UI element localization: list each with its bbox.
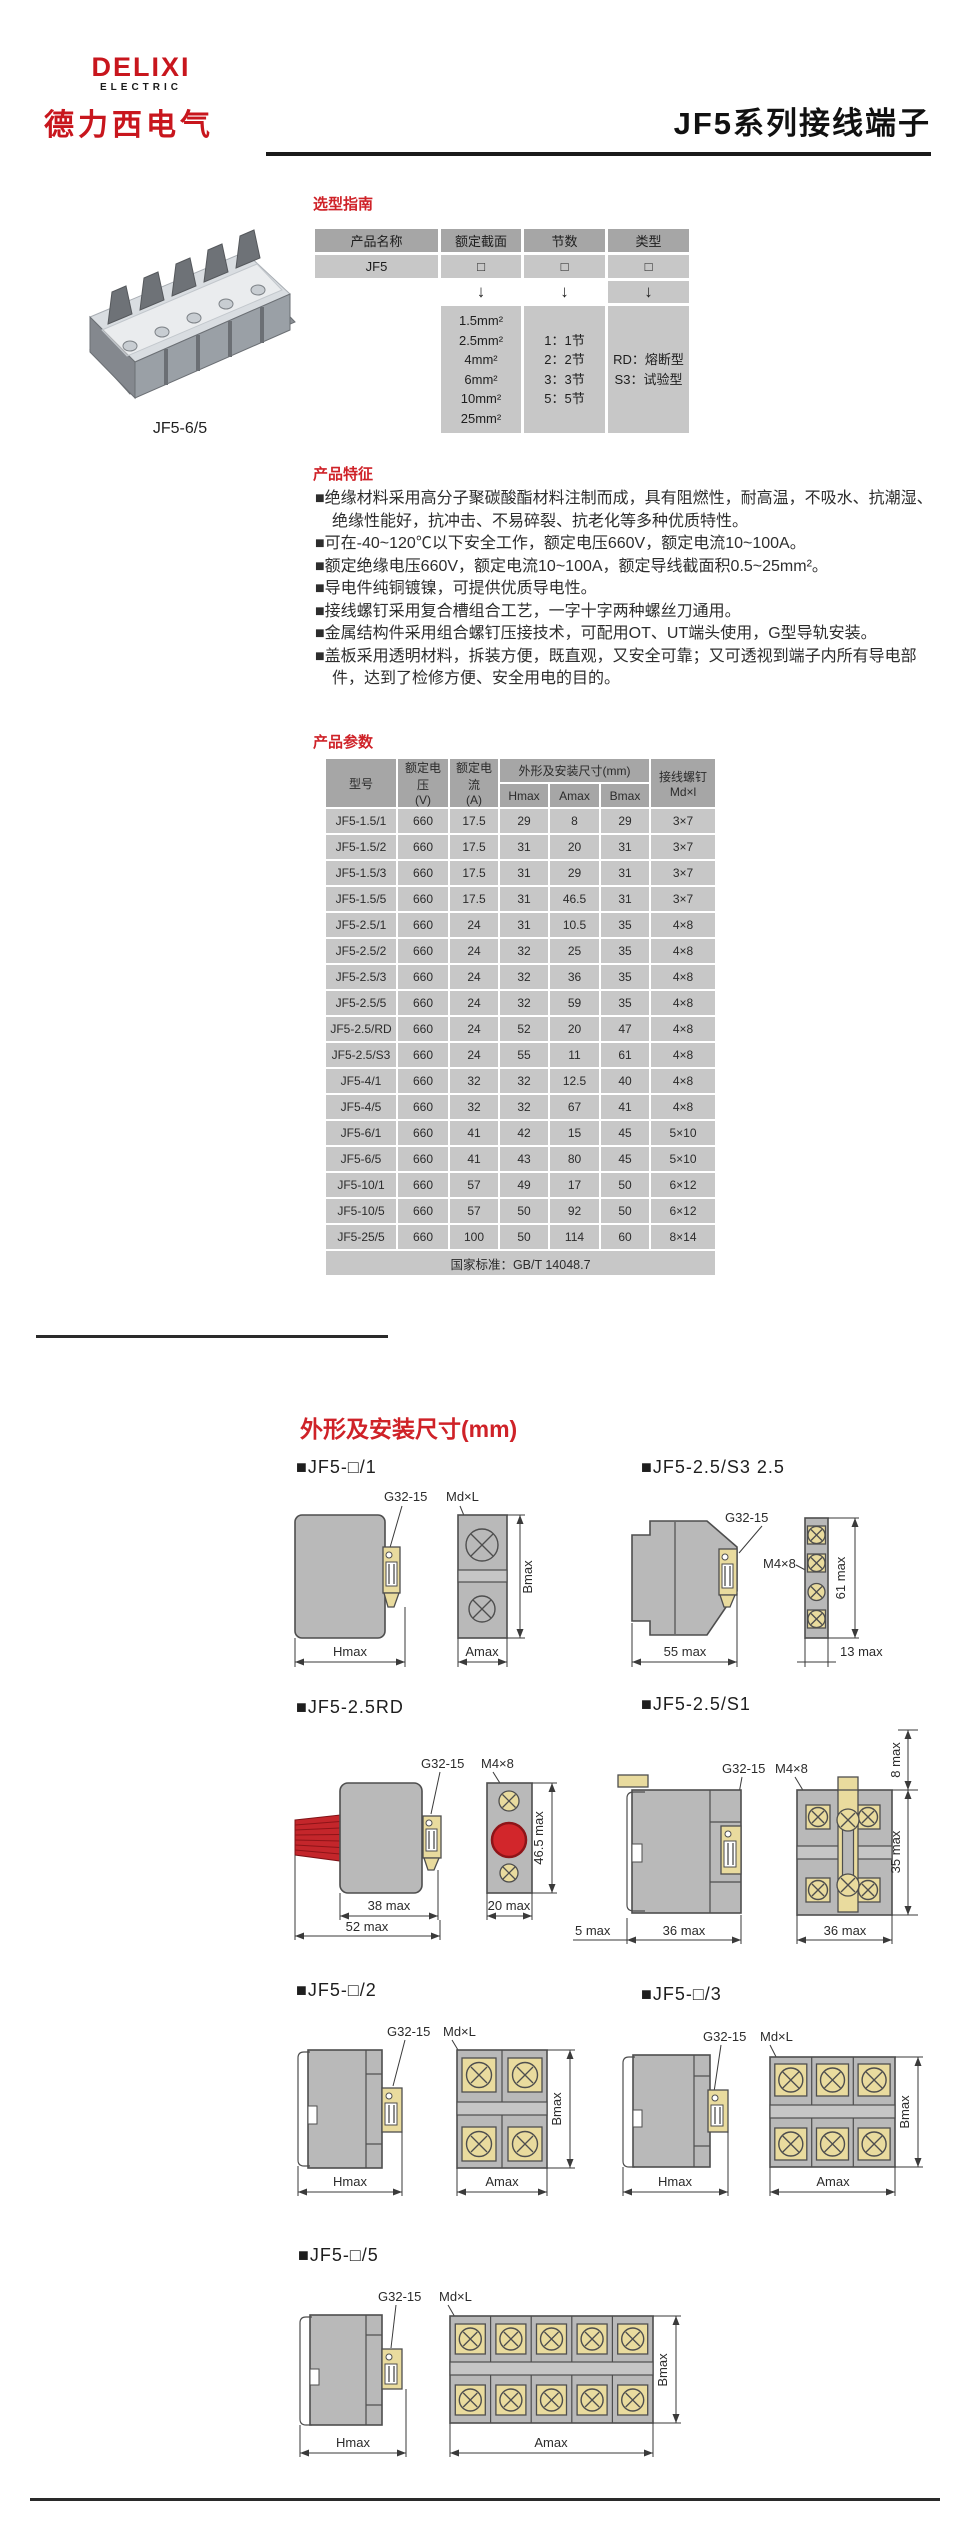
cell-screw: 6×12 bbox=[651, 1199, 715, 1223]
cell-model: JF5-4/5 bbox=[326, 1095, 396, 1119]
front-view bbox=[805, 1518, 828, 1638]
cell-model: JF5-10/5 bbox=[326, 1199, 396, 1223]
cell-model: JF5-2.5/S3 bbox=[326, 1043, 396, 1067]
front-view bbox=[797, 1777, 892, 1915]
dim-bmax: Bmax bbox=[549, 2092, 564, 2126]
dim-overhang: 5 max bbox=[575, 1923, 611, 1938]
dimension-drawing-jf5-5: G32-15 Md×L Bmax Hmax Amax bbox=[280, 2285, 695, 2463]
column-header: 型号 bbox=[326, 759, 396, 807]
cell-hmax: 52 bbox=[500, 1017, 548, 1041]
cell-model: JF5-10/1 bbox=[326, 1173, 396, 1197]
screw-annotation: M4×8 bbox=[775, 1761, 808, 1776]
rail-clip bbox=[423, 1816, 441, 1870]
feature-item: ■盖板采用透明材料，拆装方便，既直观，又安全可靠；又可透视到端子内所有导电部件，… bbox=[315, 646, 937, 691]
placeholder-box: □ bbox=[608, 255, 689, 278]
cell-bmax: 35 bbox=[601, 991, 649, 1015]
dim-hmax: Hmax bbox=[333, 1644, 367, 1659]
cell-hmax: 31 bbox=[500, 887, 548, 911]
cell-amax: 10.5 bbox=[550, 913, 599, 937]
arrow-down-icon: ↓ bbox=[524, 281, 605, 303]
column-header: 节数 bbox=[524, 229, 605, 252]
datasheet-page: DELIXI ELECTRIC 德力西电气 JF5系列接线端子 JF5-6/5 bbox=[0, 0, 970, 2535]
clip-annotation: G32-15 bbox=[725, 1510, 768, 1525]
cell-bmax: 31 bbox=[601, 887, 649, 911]
rail-clip bbox=[383, 1547, 400, 1607]
drawing-label: ■JF5-□/1 bbox=[296, 1457, 377, 1478]
cell-amax: 20 bbox=[550, 1017, 599, 1041]
cell-voltage: 660 bbox=[398, 1095, 448, 1119]
placeholder-box: □ bbox=[524, 255, 605, 278]
title-divider bbox=[266, 152, 931, 156]
table-row: JF5-1.5/5 660 17.5 31 46.5 31 3×7 bbox=[326, 887, 715, 911]
dim-amax: Amax bbox=[485, 2174, 519, 2189]
cell-amax: 11 bbox=[550, 1043, 599, 1067]
cell-bmax: 41 bbox=[601, 1095, 649, 1119]
parameters-table: 型号 额定电压 (V) 额定电流 (A) 外形及安装尺寸(mm) 接线螺钉 Md… bbox=[324, 757, 717, 1277]
clip-annotation: G32-15 bbox=[384, 1489, 427, 1504]
cell-voltage: 660 bbox=[398, 939, 448, 963]
front-view bbox=[458, 1515, 507, 1638]
dim-bmax: Bmax bbox=[520, 1560, 535, 1594]
side-view bbox=[295, 1515, 385, 1638]
dim-total-width: 52 max bbox=[346, 1919, 389, 1934]
cell-screw: 4×8 bbox=[651, 913, 715, 937]
cell-screw: 4×8 bbox=[651, 1069, 715, 1093]
cell-current: 24 bbox=[450, 1017, 498, 1041]
cell-screw: 5×10 bbox=[651, 1121, 715, 1145]
cell-bmax: 45 bbox=[601, 1147, 649, 1171]
cell-bmax: 31 bbox=[601, 861, 649, 885]
cell-hmax: 32 bbox=[500, 939, 548, 963]
arrow-down-icon: ↓ bbox=[441, 281, 521, 303]
screw-annotation: M4×8 bbox=[481, 1756, 514, 1771]
table-row: JF5-10/1 660 57 49 17 50 6×12 bbox=[326, 1173, 715, 1197]
cell-current: 57 bbox=[450, 1199, 498, 1223]
dim-height: 46.5 max bbox=[531, 1811, 546, 1865]
cell-screw: 3×7 bbox=[651, 861, 715, 885]
side-view bbox=[340, 1783, 422, 1893]
dim-hmax: Hmax bbox=[336, 2435, 370, 2450]
cell-current: 41 bbox=[450, 1147, 498, 1171]
cell-model: JF5-6/5 bbox=[326, 1147, 396, 1171]
cell-voltage: 660 bbox=[398, 1069, 448, 1093]
feature-item: ■额定绝缘电压660V，额定电流10~100A，额定导线截面积0.5~25mm²… bbox=[315, 556, 937, 579]
dim-amax: Amax bbox=[465, 1644, 499, 1659]
type-options: RD：熔断型S3：试验型 bbox=[608, 306, 689, 433]
option-item: 4mm² bbox=[464, 350, 497, 370]
dim-side-width: 36 max bbox=[663, 1923, 706, 1938]
cell-bmax: 35 bbox=[601, 939, 649, 963]
dim-depth: 20 max bbox=[488, 1898, 531, 1913]
option-item: 10mm² bbox=[461, 389, 501, 409]
cell-screw: 4×8 bbox=[651, 1095, 715, 1119]
side-view bbox=[298, 2050, 382, 2168]
page-title: JF5系列接线端子 bbox=[674, 98, 931, 143]
cell-amax: 29 bbox=[550, 861, 599, 885]
cell-voltage: 660 bbox=[398, 887, 448, 911]
column-header: 外形及安装尺寸(mm) bbox=[500, 759, 649, 782]
cell-hmax: 32 bbox=[500, 991, 548, 1015]
dim-width: 55 max bbox=[664, 1644, 707, 1659]
cell-current: 17.5 bbox=[450, 861, 498, 885]
dim-bmax: Bmax bbox=[897, 2095, 912, 2129]
option-item: 5：5节 bbox=[544, 389, 584, 409]
cell-current: 17.5 bbox=[450, 809, 498, 833]
clip-annotation: G32-15 bbox=[421, 1756, 464, 1771]
section-divider bbox=[36, 1335, 388, 1338]
clip-annotation: G32-15 bbox=[722, 1761, 765, 1776]
cell-screw: 3×7 bbox=[651, 835, 715, 859]
cell-voltage: 660 bbox=[398, 991, 448, 1015]
rail-clip bbox=[708, 2090, 728, 2132]
cell-screw: 5×10 bbox=[651, 1147, 715, 1171]
clip-annotation: G32-15 bbox=[387, 2024, 430, 2039]
cell-screw: 3×7 bbox=[651, 887, 715, 911]
cell-amax: 17 bbox=[550, 1173, 599, 1197]
column-header: 类型 bbox=[608, 229, 689, 252]
cell-bmax: 35 bbox=[601, 965, 649, 989]
screw-annotation: Md×L bbox=[760, 2029, 793, 2044]
cell-bmax: 61 bbox=[601, 1043, 649, 1067]
side-view bbox=[300, 2315, 382, 2425]
option-item: 1：1节 bbox=[544, 331, 584, 351]
column-subheader: Hmax bbox=[500, 784, 548, 807]
cell-current: 100 bbox=[450, 1225, 498, 1249]
option-item: 2：2节 bbox=[544, 350, 584, 370]
arrow-down-icon: ↓ bbox=[608, 281, 689, 303]
fuse-indicator bbox=[492, 1823, 526, 1857]
column-header: 产品名称 bbox=[315, 229, 438, 252]
option-item: RD：熔断型 bbox=[613, 350, 684, 370]
cell-current: 32 bbox=[450, 1069, 498, 1093]
dim-height: 61 max bbox=[833, 1556, 848, 1599]
cell-voltage: 660 bbox=[398, 1199, 448, 1223]
cell-model: JF5-2.5/5 bbox=[326, 991, 396, 1015]
table-row: JF5-1.5/1 660 17.5 29 8 29 3×7 bbox=[326, 809, 715, 833]
table-row: JF5-2.5/1 660 24 31 10.5 35 4×8 bbox=[326, 913, 715, 937]
cell-voltage: 660 bbox=[398, 1173, 448, 1197]
column-header: 额定电压 (V) bbox=[398, 759, 448, 807]
feature-item: ■绝缘材料采用高分子聚碳酸酯材料注制而成，具有阻燃性，耐高温，不吸水、抗潮湿、绝… bbox=[315, 488, 937, 533]
cell-hmax: 32 bbox=[500, 1069, 548, 1093]
cross-section-options: 1.5mm²2.5mm²4mm²6mm²10mm²25mm² bbox=[441, 306, 521, 433]
cell-screw: 8×14 bbox=[651, 1225, 715, 1249]
dimension-drawing-jf5-2: G32-15 Md×L Bmax Hmax Amax bbox=[280, 2018, 585, 2200]
dimensions-heading: 外形及安装尺寸(mm) bbox=[300, 1410, 517, 1444]
dim-amax: Amax bbox=[534, 2435, 568, 2450]
column-subheader: Bmax bbox=[601, 784, 649, 807]
cell-bmax: 31 bbox=[601, 835, 649, 859]
cell-screw: 4×8 bbox=[651, 939, 715, 963]
table-row: JF5-6/5 660 41 43 80 45 5×10 bbox=[326, 1147, 715, 1171]
cell-model: JF5-1.5/1 bbox=[326, 809, 396, 833]
cell-current: 41 bbox=[450, 1121, 498, 1145]
cell-bmax: 40 bbox=[601, 1069, 649, 1093]
feature-item: ■导电件纯铜镀镍，可提供优质导电性。 bbox=[315, 578, 937, 601]
drawing-label: ■JF5-2.5/S3 2.5 bbox=[641, 1457, 785, 1478]
rail-clip bbox=[721, 1826, 741, 1874]
cell-hmax: 42 bbox=[500, 1121, 548, 1145]
table-row: JF5-2.5/RD 660 24 52 20 47 4×8 bbox=[326, 1017, 715, 1041]
cell-bmax: 50 bbox=[601, 1173, 649, 1197]
cell-amax: 80 bbox=[550, 1147, 599, 1171]
cell-current: 24 bbox=[450, 965, 498, 989]
screw-annotation: Md×L bbox=[446, 1489, 479, 1504]
dim-tab-height: 8 max bbox=[888, 1742, 903, 1778]
table-row: JF5-10/5 660 57 50 92 50 6×12 bbox=[326, 1199, 715, 1223]
feature-list: ■绝缘材料采用高分子聚碳酸酯材料注制而成，具有阻燃性，耐高温，不吸水、抗潮湿、绝… bbox=[315, 488, 937, 691]
brand-logo-sub: ELECTRIC bbox=[66, 82, 216, 93]
column-subheader: Amax bbox=[550, 784, 599, 807]
dimension-drawing-jf5-3: G32-15 Md×L Bmax Hmax Amax bbox=[600, 2018, 930, 2200]
cell-screw: 4×8 bbox=[651, 1017, 715, 1041]
cell-model: JF5-1.5/3 bbox=[326, 861, 396, 885]
dim-body-width: 38 max bbox=[368, 1898, 411, 1913]
cell-screw: 4×8 bbox=[651, 965, 715, 989]
table-row: JF5-2.5/5 660 24 32 59 35 4×8 bbox=[326, 991, 715, 1015]
option-item: 25mm² bbox=[461, 409, 501, 429]
dim-hmax: Hmax bbox=[333, 2174, 367, 2189]
cell-model: JF5-2.5/RD bbox=[326, 1017, 396, 1041]
cell-screw: 4×8 bbox=[651, 1043, 715, 1067]
cell-amax: 36 bbox=[550, 965, 599, 989]
cell-voltage: 660 bbox=[398, 835, 448, 859]
cell-model: JF5-2.5/3 bbox=[326, 965, 396, 989]
cell-screw: 6×12 bbox=[651, 1173, 715, 1197]
cell-current: 17.5 bbox=[450, 835, 498, 859]
cell-bmax: 50 bbox=[601, 1199, 649, 1223]
dimension-drawing-jf5-1: G32-15 Md×L Hmax Amax Bmax bbox=[280, 1485, 538, 1675]
option-item: 3：3节 bbox=[544, 370, 584, 390]
cell-amax: 59 bbox=[550, 991, 599, 1015]
table-row: JF5-2.5/2 660 24 32 25 35 4×8 bbox=[326, 939, 715, 963]
product-name: JF5 bbox=[315, 255, 438, 278]
cell-hmax: 43 bbox=[500, 1147, 548, 1171]
cell-model: JF5-4/1 bbox=[326, 1069, 396, 1093]
cell-model: JF5-1.5/2 bbox=[326, 835, 396, 859]
table-footer-row: 国家标准：GB/T 14048.7 bbox=[326, 1251, 715, 1275]
screw-annotation: M4×8 bbox=[763, 1556, 796, 1571]
screw-annotation: Md×L bbox=[439, 2289, 472, 2304]
cell-model: JF5-6/1 bbox=[326, 1121, 396, 1145]
drawing-label: ■JF5-2.5/S1 bbox=[641, 1694, 751, 1715]
drawing-label: ■JF5-2.5RD bbox=[296, 1697, 404, 1718]
cell-current: 24 bbox=[450, 939, 498, 963]
dim-depth: 13 max bbox=[840, 1644, 883, 1659]
rail-clip bbox=[382, 2088, 402, 2132]
side-view bbox=[623, 2055, 710, 2167]
option-item: 2.5mm² bbox=[459, 331, 503, 351]
cell-bmax: 35 bbox=[601, 913, 649, 937]
table-row: JF5-4/5 660 32 32 67 41 4×8 bbox=[326, 1095, 715, 1119]
cell-bmax: 47 bbox=[601, 1017, 649, 1041]
front-view bbox=[487, 1783, 532, 1893]
cell-model: JF5-2.5/1 bbox=[326, 913, 396, 937]
table-row: JF5-1.5/3 660 17.5 31 29 31 3×7 bbox=[326, 861, 715, 885]
clip-annotation: G32-15 bbox=[378, 2289, 421, 2304]
front-view bbox=[450, 2316, 653, 2423]
cell-hmax: 32 bbox=[500, 965, 548, 989]
brand-logo: DELIXI bbox=[66, 52, 216, 83]
cell-amax: 67 bbox=[550, 1095, 599, 1119]
section-count-options: 1：1节2：2节3：3节5：5节 bbox=[524, 306, 605, 433]
cell-bmax: 60 bbox=[601, 1225, 649, 1249]
product-photo bbox=[50, 222, 310, 420]
cell-hmax: 29 bbox=[500, 809, 548, 833]
option-item: S3：试验型 bbox=[615, 370, 683, 390]
cell-model: JF5-2.5/2 bbox=[326, 939, 396, 963]
cell-model: JF5-25/5 bbox=[326, 1225, 396, 1249]
clip-annotation: G32-15 bbox=[703, 2029, 746, 2044]
brand-logo-chinese: 德力西电气 bbox=[44, 100, 214, 144]
cell-hmax: 50 bbox=[500, 1199, 548, 1223]
footer-divider bbox=[30, 2498, 940, 2501]
dim-front-width: 36 max bbox=[824, 1923, 867, 1938]
feature-item: ■可在-40~120℃以下安全工作，额定电压660V，额定电流10~100A。 bbox=[315, 533, 937, 556]
cell-voltage: 660 bbox=[398, 861, 448, 885]
cell-hmax: 55 bbox=[500, 1043, 548, 1067]
cell-voltage: 660 bbox=[398, 1043, 448, 1067]
cell-current: 24 bbox=[450, 913, 498, 937]
cell-current: 24 bbox=[450, 1043, 498, 1067]
cell-amax: 12.5 bbox=[550, 1069, 599, 1093]
selection-guide-table: 产品名称 额定截面 节数 类型 JF5 □ □ □ ↓ ↓ ↓ 1.5mm²2.… bbox=[315, 229, 689, 433]
option-item: 6mm² bbox=[464, 370, 497, 390]
cell-current: 24 bbox=[450, 991, 498, 1015]
screw-annotation: Md×L bbox=[443, 2024, 476, 2039]
cell-amax: 25 bbox=[550, 939, 599, 963]
standard-note: 国家标准：GB/T 14048.7 bbox=[326, 1251, 715, 1275]
cell-voltage: 660 bbox=[398, 1017, 448, 1041]
drawing-label: ■JF5-□/2 bbox=[296, 1980, 377, 2001]
table-row: JF5-1.5/2 660 17.5 31 20 31 3×7 bbox=[326, 835, 715, 859]
option-item: 1.5mm² bbox=[459, 311, 503, 331]
dimension-drawing-jf5-s1: G32-15 M4×8 8 max 35 max 5 max 36 max 36… bbox=[570, 1722, 925, 1950]
cell-screw: 4×8 bbox=[651, 991, 715, 1015]
drawing-label: ■JF5-□/3 bbox=[641, 1984, 722, 2005]
cell-current: 17.5 bbox=[450, 887, 498, 911]
column-header: 接线螺钉 Md×l bbox=[651, 759, 715, 807]
cell-amax: 46.5 bbox=[550, 887, 599, 911]
dim-amax: Amax bbox=[816, 2174, 850, 2189]
cell-bmax: 29 bbox=[601, 809, 649, 833]
cell-voltage: 660 bbox=[398, 1121, 448, 1145]
table-row: JF5-4/1 660 32 32 12.5 40 4×8 bbox=[326, 1069, 715, 1093]
wire-bundle bbox=[295, 1815, 340, 1861]
rail-clip bbox=[382, 2349, 402, 2389]
column-header: 额定电流 (A) bbox=[450, 759, 498, 807]
dim-height: 35 max bbox=[888, 1830, 903, 1873]
front-view bbox=[770, 2057, 895, 2167]
features-heading: 产品特征 bbox=[313, 463, 373, 484]
table-row: JF5-2.5/3 660 24 32 36 35 4×8 bbox=[326, 965, 715, 989]
feature-item: ■接线螺钉采用复合槽组合工艺，一字十字两种螺丝刀通用。 bbox=[315, 601, 937, 624]
front-view bbox=[457, 2050, 547, 2168]
table-row: JF5-25/5 660 100 50 114 60 8×14 bbox=[326, 1225, 715, 1249]
cell-amax: 114 bbox=[550, 1225, 599, 1249]
cell-bmax: 45 bbox=[601, 1121, 649, 1145]
cell-voltage: 660 bbox=[398, 965, 448, 989]
dim-bmax: Bmax bbox=[655, 2353, 670, 2387]
cell-hmax: 31 bbox=[500, 835, 548, 859]
table-row: JF5-6/1 660 41 42 15 45 5×10 bbox=[326, 1121, 715, 1145]
cell-hmax: 32 bbox=[500, 1095, 548, 1119]
cell-hmax: 49 bbox=[500, 1173, 548, 1197]
dimension-drawing-jf5-rd: G32-15 M4×8 46.5 max 38 max 20 max 52 ma… bbox=[280, 1752, 580, 1947]
column-header: 额定截面 bbox=[441, 229, 521, 252]
cell-current: 57 bbox=[450, 1173, 498, 1197]
cell-voltage: 660 bbox=[398, 1147, 448, 1171]
dim-hmax: Hmax bbox=[658, 2174, 692, 2189]
cell-voltage: 660 bbox=[398, 913, 448, 937]
drawing-label: ■JF5-□/5 bbox=[298, 2245, 379, 2266]
cell-amax: 92 bbox=[550, 1199, 599, 1223]
cell-hmax: 31 bbox=[500, 913, 548, 937]
placeholder-box: □ bbox=[441, 255, 521, 278]
table-row: JF5-2.5/S3 660 24 55 11 61 4×8 bbox=[326, 1043, 715, 1067]
cell-voltage: 660 bbox=[398, 809, 448, 833]
cell-hmax: 50 bbox=[500, 1225, 548, 1249]
feature-item: ■金属结构件采用组合螺钉压接技术，可配用OT、UT端头使用，G型导轨安装。 bbox=[315, 623, 937, 646]
cell-amax: 15 bbox=[550, 1121, 599, 1145]
cell-amax: 20 bbox=[550, 835, 599, 859]
cell-model: JF5-1.5/5 bbox=[326, 887, 396, 911]
cell-voltage: 660 bbox=[398, 1225, 448, 1249]
parameters-heading: 产品参数 bbox=[313, 731, 373, 752]
rail-clip bbox=[719, 1549, 737, 1607]
selection-guide-heading: 选型指南 bbox=[313, 193, 373, 214]
product-photo-caption: JF5-6/5 bbox=[130, 420, 230, 438]
cell-current: 32 bbox=[450, 1095, 498, 1119]
cell-hmax: 31 bbox=[500, 861, 548, 885]
dimension-drawing-jf5-s3: G32-15 M4×8 61 max 55 max 13 max bbox=[615, 1495, 905, 1680]
cell-amax: 8 bbox=[550, 809, 599, 833]
cell-screw: 3×7 bbox=[651, 809, 715, 833]
